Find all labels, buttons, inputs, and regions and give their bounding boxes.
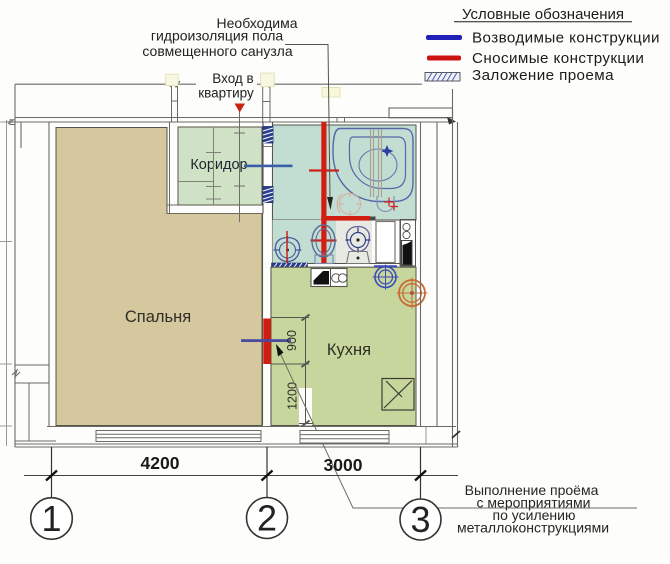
svg-text:Возводимые конструкции: Возводимые конструкции <box>472 30 660 47</box>
svg-text:металлоконструкциями: металлоконструкциями <box>457 520 609 536</box>
svg-text:Заложение проема: Заложение проема <box>472 67 614 84</box>
svg-text:3: 3 <box>410 499 430 540</box>
svg-text:Условные обозначения: Условные обозначения <box>462 6 624 23</box>
svg-text:Кухня: Кухня <box>327 341 371 359</box>
svg-text:4200: 4200 <box>141 453 180 473</box>
svg-text:900: 900 <box>285 330 299 351</box>
svg-text:квартиру: квартиру <box>198 86 254 101</box>
svg-text:Вход в: Вход в <box>212 71 253 86</box>
svg-text:Сносимые конструкции: Сносимые конструкции <box>472 50 644 67</box>
svg-text:1: 1 <box>41 498 61 539</box>
svg-text:Спальня: Спальня <box>125 308 191 326</box>
svg-text:3000: 3000 <box>324 455 363 475</box>
svg-text:совмещенного санузла: совмещенного санузла <box>142 43 292 59</box>
svg-text:гидроизоляция пола: гидроизоляция пола <box>151 28 284 44</box>
svg-text:2: 2 <box>257 498 277 539</box>
svg-text:1200: 1200 <box>286 382 300 410</box>
